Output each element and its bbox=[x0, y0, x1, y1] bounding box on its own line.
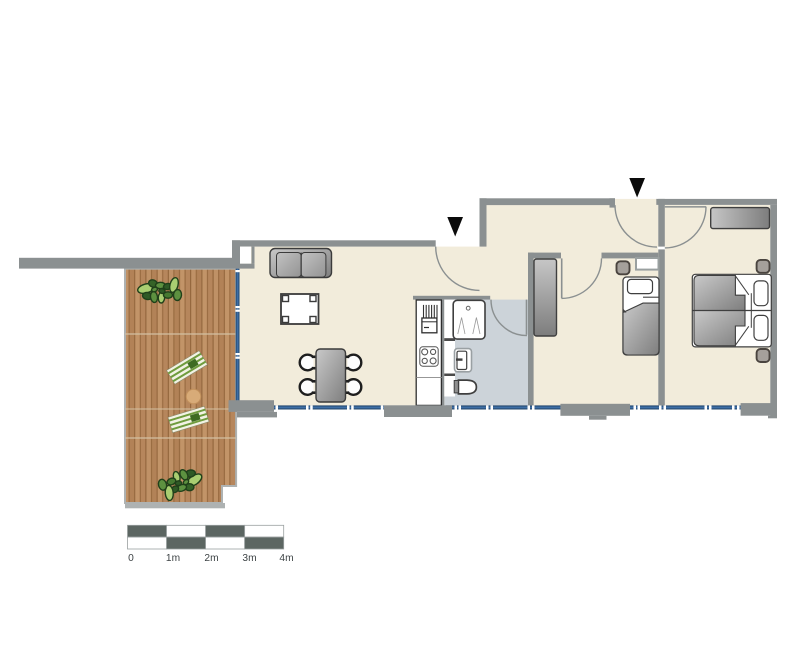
svg-text:3m: 3m bbox=[242, 553, 256, 564]
svg-text:2m: 2m bbox=[204, 553, 218, 564]
svg-text:0: 0 bbox=[128, 553, 134, 564]
svg-text:4m: 4m bbox=[279, 553, 293, 564]
svg-text:1m: 1m bbox=[166, 553, 180, 564]
